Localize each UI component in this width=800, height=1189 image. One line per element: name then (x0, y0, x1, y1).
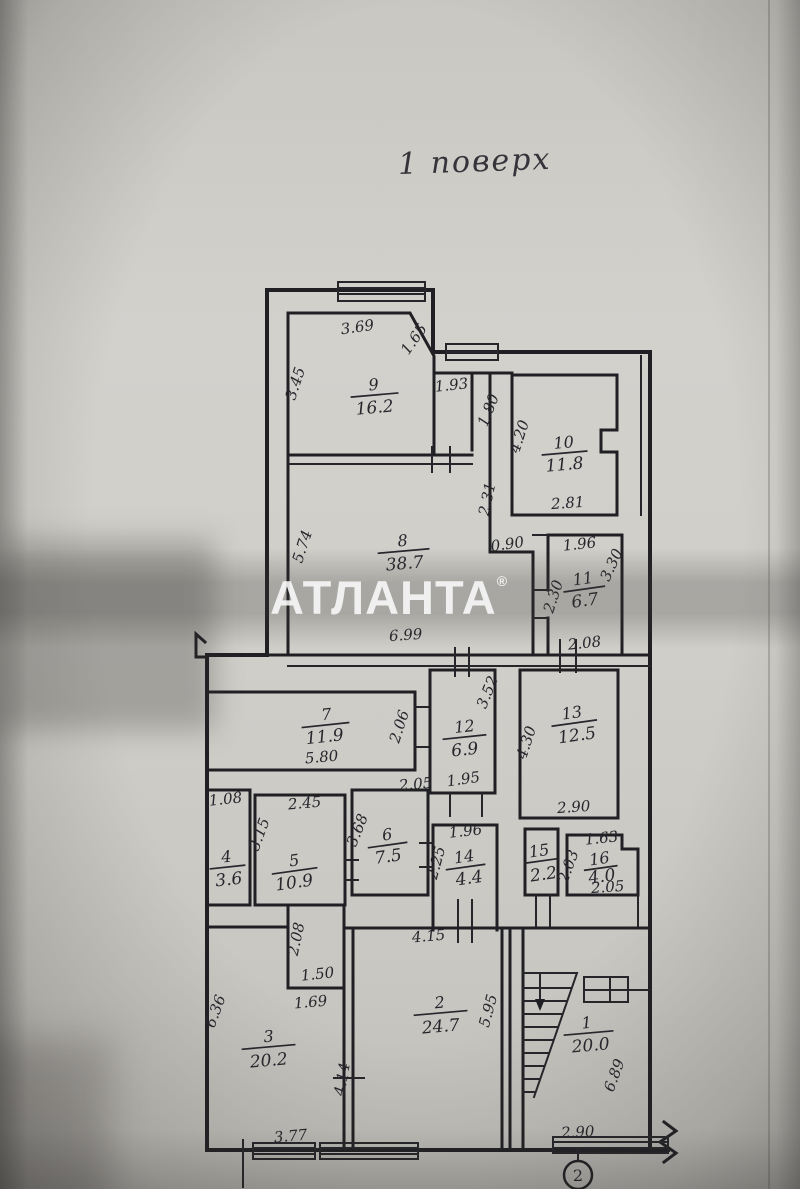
watermark: АТЛАНТА® (270, 570, 507, 625)
room-6-label: 6 7.5 (365, 822, 410, 869)
room-10-label: 10 11.8 (540, 431, 589, 477)
registered-mark: ® (497, 573, 507, 589)
room-2-label: 2 24.7 (412, 991, 470, 1040)
dim-room8-bottom: 6.99 (388, 625, 423, 645)
room-13-area: 12.5 (557, 723, 597, 748)
dim-room16-bottom: 2.05 (589, 877, 625, 897)
room-6-area: 7.5 (373, 845, 403, 869)
dim-room7-right: 2.06 (385, 707, 413, 746)
room-3-label: 3 20.2 (240, 1025, 298, 1074)
room-14-number: 14 (453, 846, 476, 868)
room-4-number: 4 (219, 847, 232, 867)
room-15-area: 2.2 (528, 863, 559, 887)
dim-room12-right: 3.52 (473, 673, 502, 711)
room-7-label: 7 11.9 (300, 703, 352, 750)
room-4-area: 3.6 (214, 869, 243, 892)
dim-room8-left: 5.74 (289, 528, 316, 565)
room-9-area: 16.2 (355, 396, 394, 419)
room-5-area: 10.9 (274, 870, 314, 895)
dim-room3-inner: 1.69 (293, 992, 328, 1013)
room-13-label: 13 12.5 (549, 700, 601, 749)
dim-room3-bottom: 3.77 (273, 1126, 308, 1147)
dim-room4-top: 1.08 (208, 788, 243, 809)
dim-room10-bottom: 2.81 (549, 493, 585, 513)
dim-room10-left: 4.20 (505, 417, 533, 456)
staircase (523, 973, 650, 1097)
sheet-number: 2 (573, 1166, 583, 1185)
plan-title: 1 поверх (397, 141, 578, 182)
dim-room1-bottom: 2.90 (560, 1122, 596, 1142)
watermark-text: АТЛАНТА (270, 571, 497, 624)
sheet-number-badge: 2 (564, 1150, 592, 1189)
dim-room9-top: 3.69 (340, 316, 376, 339)
dim-hall-top: 1.93 (434, 374, 469, 395)
room-12-number: 12 (453, 716, 475, 737)
dim-room16-top: 1.63 (584, 827, 619, 848)
room-1-area: 20.0 (570, 1034, 611, 1057)
room-2-area: 24.7 (420, 1015, 461, 1038)
room-12-area: 6.9 (450, 739, 479, 762)
dim-room14-top: 1.96 (448, 820, 484, 841)
room-10-number: 10 (553, 432, 575, 453)
dim-room5-top: 2.45 (286, 793, 322, 814)
room-8-number: 8 (397, 531, 409, 551)
dim-closet-bottom: 1.50 (300, 963, 336, 984)
dim-room11-top: 1.96 (562, 533, 598, 554)
room-9-label: 9 16.2 (349, 373, 401, 420)
dim-room6-top: 2.05 (397, 774, 433, 795)
room-3-number: 3 (263, 1026, 275, 1046)
dim-room8-right-top: 2.31 (475, 481, 500, 518)
room-13-number: 13 (560, 702, 583, 724)
room-1-number: 1 (581, 1013, 593, 1033)
dim-room11-bottom: 2.08 (566, 632, 602, 653)
dim-room3-right: 4.14 (330, 1061, 354, 1098)
dim-room6-left: 3.68 (343, 811, 372, 849)
room-15-number: 15 (528, 840, 551, 862)
room-14-area: 4.4 (453, 867, 484, 891)
dim-room7-bottom: 5.80 (304, 747, 339, 768)
room-11-number: 11 (571, 568, 594, 590)
room-7-area: 11.9 (305, 725, 345, 749)
dim-room2-right: 5.95 (475, 992, 501, 1029)
room-9-number: 9 (368, 375, 380, 395)
dim-room1-right: 6.89 (600, 1056, 628, 1094)
dim-room9-left: 3.45 (282, 365, 309, 402)
room-3-area: 20.2 (248, 1049, 288, 1072)
room-14-label: 14 4.4 (443, 844, 488, 891)
room-12-label: 12 6.9 (441, 715, 489, 762)
room-6-number: 6 (381, 824, 394, 844)
room-10-area: 11.8 (545, 453, 585, 476)
dim-room12-bottom: 1.95 (446, 768, 482, 790)
dim-room13-left: 4.30 (512, 723, 540, 762)
dim-room13-bottom: 2.90 (555, 797, 591, 817)
room-5-label: 5 10.9 (269, 848, 320, 896)
dim-hall-right: 1.80 (474, 391, 503, 429)
dim-room11-left: 2.30 (539, 577, 567, 616)
dim-room2-top: 4.15 (410, 926, 446, 947)
room-7-number: 7 (320, 704, 333, 724)
room-4-label: 4 3.6 (207, 845, 247, 892)
room-1-label: 1 20.0 (562, 1011, 616, 1058)
room-5-number: 5 (288, 850, 301, 870)
room-2-number: 2 (433, 993, 446, 1013)
room-11-area: 6.7 (570, 589, 600, 613)
floor-plan-photo: 1 поверх (0, 0, 800, 1189)
